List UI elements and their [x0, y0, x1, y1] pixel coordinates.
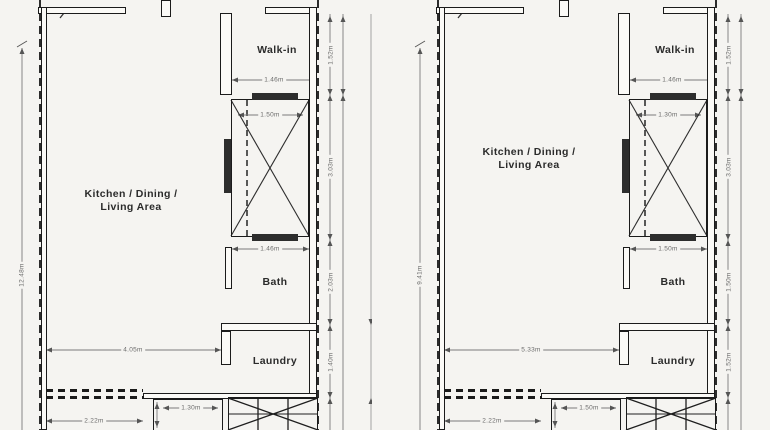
balcony-dashed-line: [444, 396, 541, 399]
dim-walkin-width: 1.46m: [262, 77, 286, 84]
wall-bath-door-stub: [623, 247, 630, 289]
kitchen-label-line2: Living Area: [85, 201, 178, 214]
dim-balcony-width: 2.22m: [82, 418, 106, 425]
wall-top-left: [38, 7, 126, 14]
staircase-outline: [228, 397, 318, 430]
room-label-kitchen: Kitchen / Dining / Living Area: [483, 146, 576, 172]
balcony-dashed-line: [46, 389, 143, 392]
shaft-top-threshold: [252, 93, 298, 100]
dim-bath-height: 1.50m: [726, 270, 733, 294]
wall-top-left: [436, 7, 524, 14]
shaft-bottom-threshold: [252, 234, 298, 241]
kitchen-label-line1: Kitchen / Dining /: [483, 146, 576, 159]
dim-walkin-height: 1.52m: [328, 43, 335, 67]
dim-shaft-height: 3.03m: [328, 155, 335, 179]
dim-bath-height: 2.03m: [328, 270, 335, 294]
kitchen-label-line1: Kitchen / Dining /: [85, 188, 178, 201]
dim-left-height: 9.41m: [417, 263, 424, 287]
dim-small-room-width: 1.50m: [577, 405, 601, 412]
wall-top-stub: [559, 0, 569, 17]
dim-bath-width: 1.50m: [656, 246, 680, 253]
elevator-shaft-outline: [231, 99, 309, 237]
wall-corridor: [618, 13, 630, 95]
dim-living-width: 4.05m: [121, 347, 145, 354]
room-label-laundry: Laundry: [253, 355, 297, 368]
dim-bath-width: 1.46m: [258, 246, 282, 253]
dim-shaft-height: 3.03m: [726, 155, 733, 179]
shaft-top-threshold: [650, 93, 696, 100]
dim-shaft-width: 1.50m: [258, 112, 282, 119]
wall-left: [41, 7, 47, 430]
dim-laundry-height: 1.52m: [726, 350, 733, 374]
dim-left-height: 12.48m: [19, 261, 26, 288]
dim-walkin-height: 1.52m: [726, 43, 733, 67]
dimension-arrows: [20, 16, 373, 427]
wall-bath-door-stub: [225, 247, 232, 289]
shaft-door: [622, 139, 629, 193]
dim-walkin-width: 1.46m: [660, 77, 684, 84]
wall-divider-stub: [619, 331, 629, 365]
room-label-walkin: Walk-in: [655, 44, 695, 57]
shaft-door: [224, 139, 231, 193]
wall-corridor: [220, 13, 232, 95]
floorplan-unit-left: Kitchen / Dining / Living Area Walk-in B…: [0, 0, 372, 430]
floorplan-unit-right: Kitchen / Dining / Living Area Walk-in B…: [398, 0, 770, 430]
kitchen-label-line2: Living Area: [483, 159, 576, 172]
room-label-bath: Bath: [263, 276, 288, 289]
wall-bath-laundry-divider: [619, 323, 715, 331]
dim-balcony-width: 2.22m: [480, 418, 504, 425]
elevator-shaft-outline: [629, 99, 707, 237]
balcony-dashed-line: [444, 389, 541, 392]
dim-living-width: 5.33m: [519, 347, 543, 354]
dim-shaft-width: 1.30m: [656, 112, 680, 119]
balcony-dashed-line: [46, 396, 143, 399]
wall-divider-stub: [221, 331, 231, 365]
wall-left: [439, 7, 445, 430]
wall-right: [707, 7, 715, 398]
room-label-bath: Bath: [661, 276, 686, 289]
room-label-laundry: Laundry: [651, 355, 695, 368]
floor-plan-canvas: Kitchen / Dining / Living Area Walk-in B…: [0, 0, 770, 430]
room-label-kitchen: Kitchen / Dining / Living Area: [85, 188, 178, 214]
wall-top-stub: [161, 0, 171, 17]
dim-small-room-width: 1.30m: [179, 405, 203, 412]
shaft-bottom-threshold: [650, 234, 696, 241]
room-label-walkin: Walk-in: [257, 44, 297, 57]
staircase-outline: [626, 397, 716, 430]
wall-right: [309, 7, 317, 398]
wall-bath-laundry-divider: [221, 323, 317, 331]
dim-laundry-height: 1.40m: [328, 350, 335, 374]
